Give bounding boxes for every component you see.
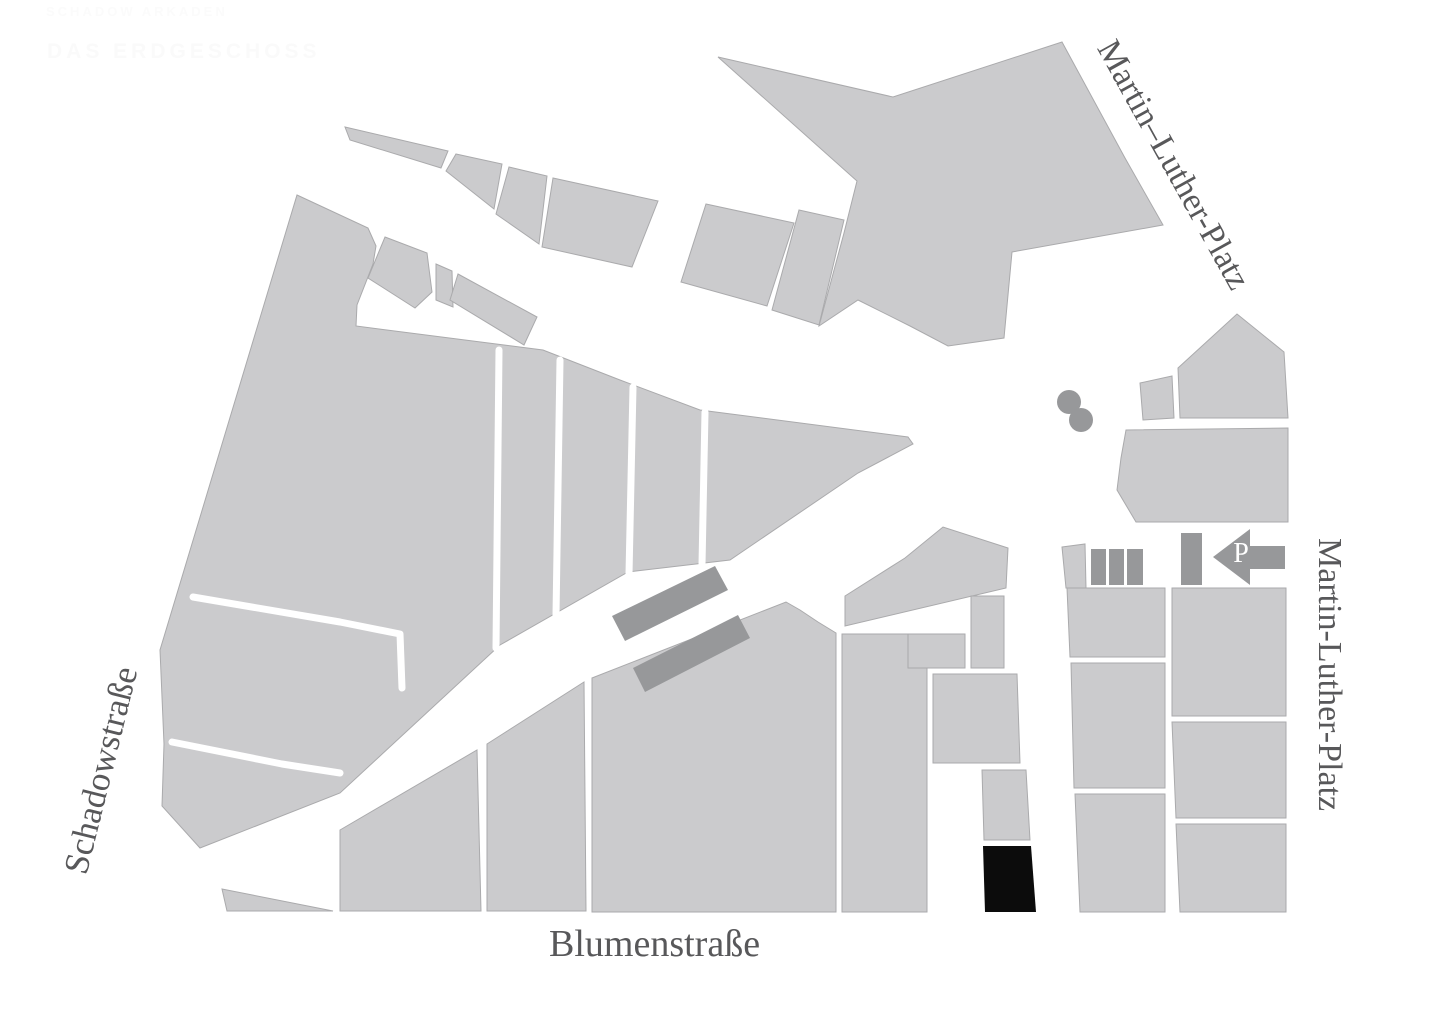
map-block [1140, 376, 1174, 420]
map-block [1172, 722, 1286, 818]
street-label-martin-luther-platz-right: Martin-Luther-Platz [1310, 538, 1348, 811]
northeast-blocks [1117, 314, 1288, 522]
map-block [368, 237, 432, 308]
map-block [446, 154, 502, 209]
map-block [1071, 663, 1165, 788]
highlighted-building [983, 846, 1036, 912]
map-block [971, 596, 1004, 668]
dark-building [1127, 549, 1143, 585]
map-block [842, 634, 927, 912]
street-label-blumenstrasse: Blumenstraße [549, 922, 760, 966]
plaza-marker-dots [1057, 390, 1093, 432]
map-block [345, 127, 448, 168]
map-block [1062, 544, 1086, 588]
island-blocks [368, 237, 537, 345]
map-block [908, 634, 965, 668]
map-block [1117, 428, 1288, 522]
faint-page-title: DAS ERDGESCHOSS [47, 40, 321, 64]
map-block [450, 274, 537, 345]
map-block [542, 178, 658, 267]
map-block [1075, 794, 1165, 912]
map-block [487, 682, 586, 911]
map-block [222, 889, 333, 911]
map-block [1172, 588, 1286, 716]
dark-building-tall [1181, 533, 1202, 585]
map-block [340, 750, 481, 911]
map-block [1178, 314, 1288, 418]
small-dark-buildings [1091, 549, 1143, 585]
dark-building [1091, 549, 1106, 585]
fountain-dot [1069, 408, 1093, 432]
city-map [0, 0, 1440, 1015]
parking-p-label: P [1228, 538, 1254, 570]
map-block [1176, 824, 1286, 912]
map-stage: Martin–Luther-Platz Martin-Luther-Platz … [0, 0, 1440, 1015]
map-block [1067, 588, 1165, 657]
map-block [933, 674, 1020, 763]
dark-building [1109, 549, 1124, 585]
right-column-blocks [1172, 588, 1286, 912]
map-block [496, 167, 547, 244]
map-block [982, 770, 1030, 840]
bottom-middle-blocks [592, 527, 1030, 912]
faint-nav-text: SCHADOW ARKADEN [46, 4, 228, 19]
middle-column-blocks [1062, 544, 1165, 912]
